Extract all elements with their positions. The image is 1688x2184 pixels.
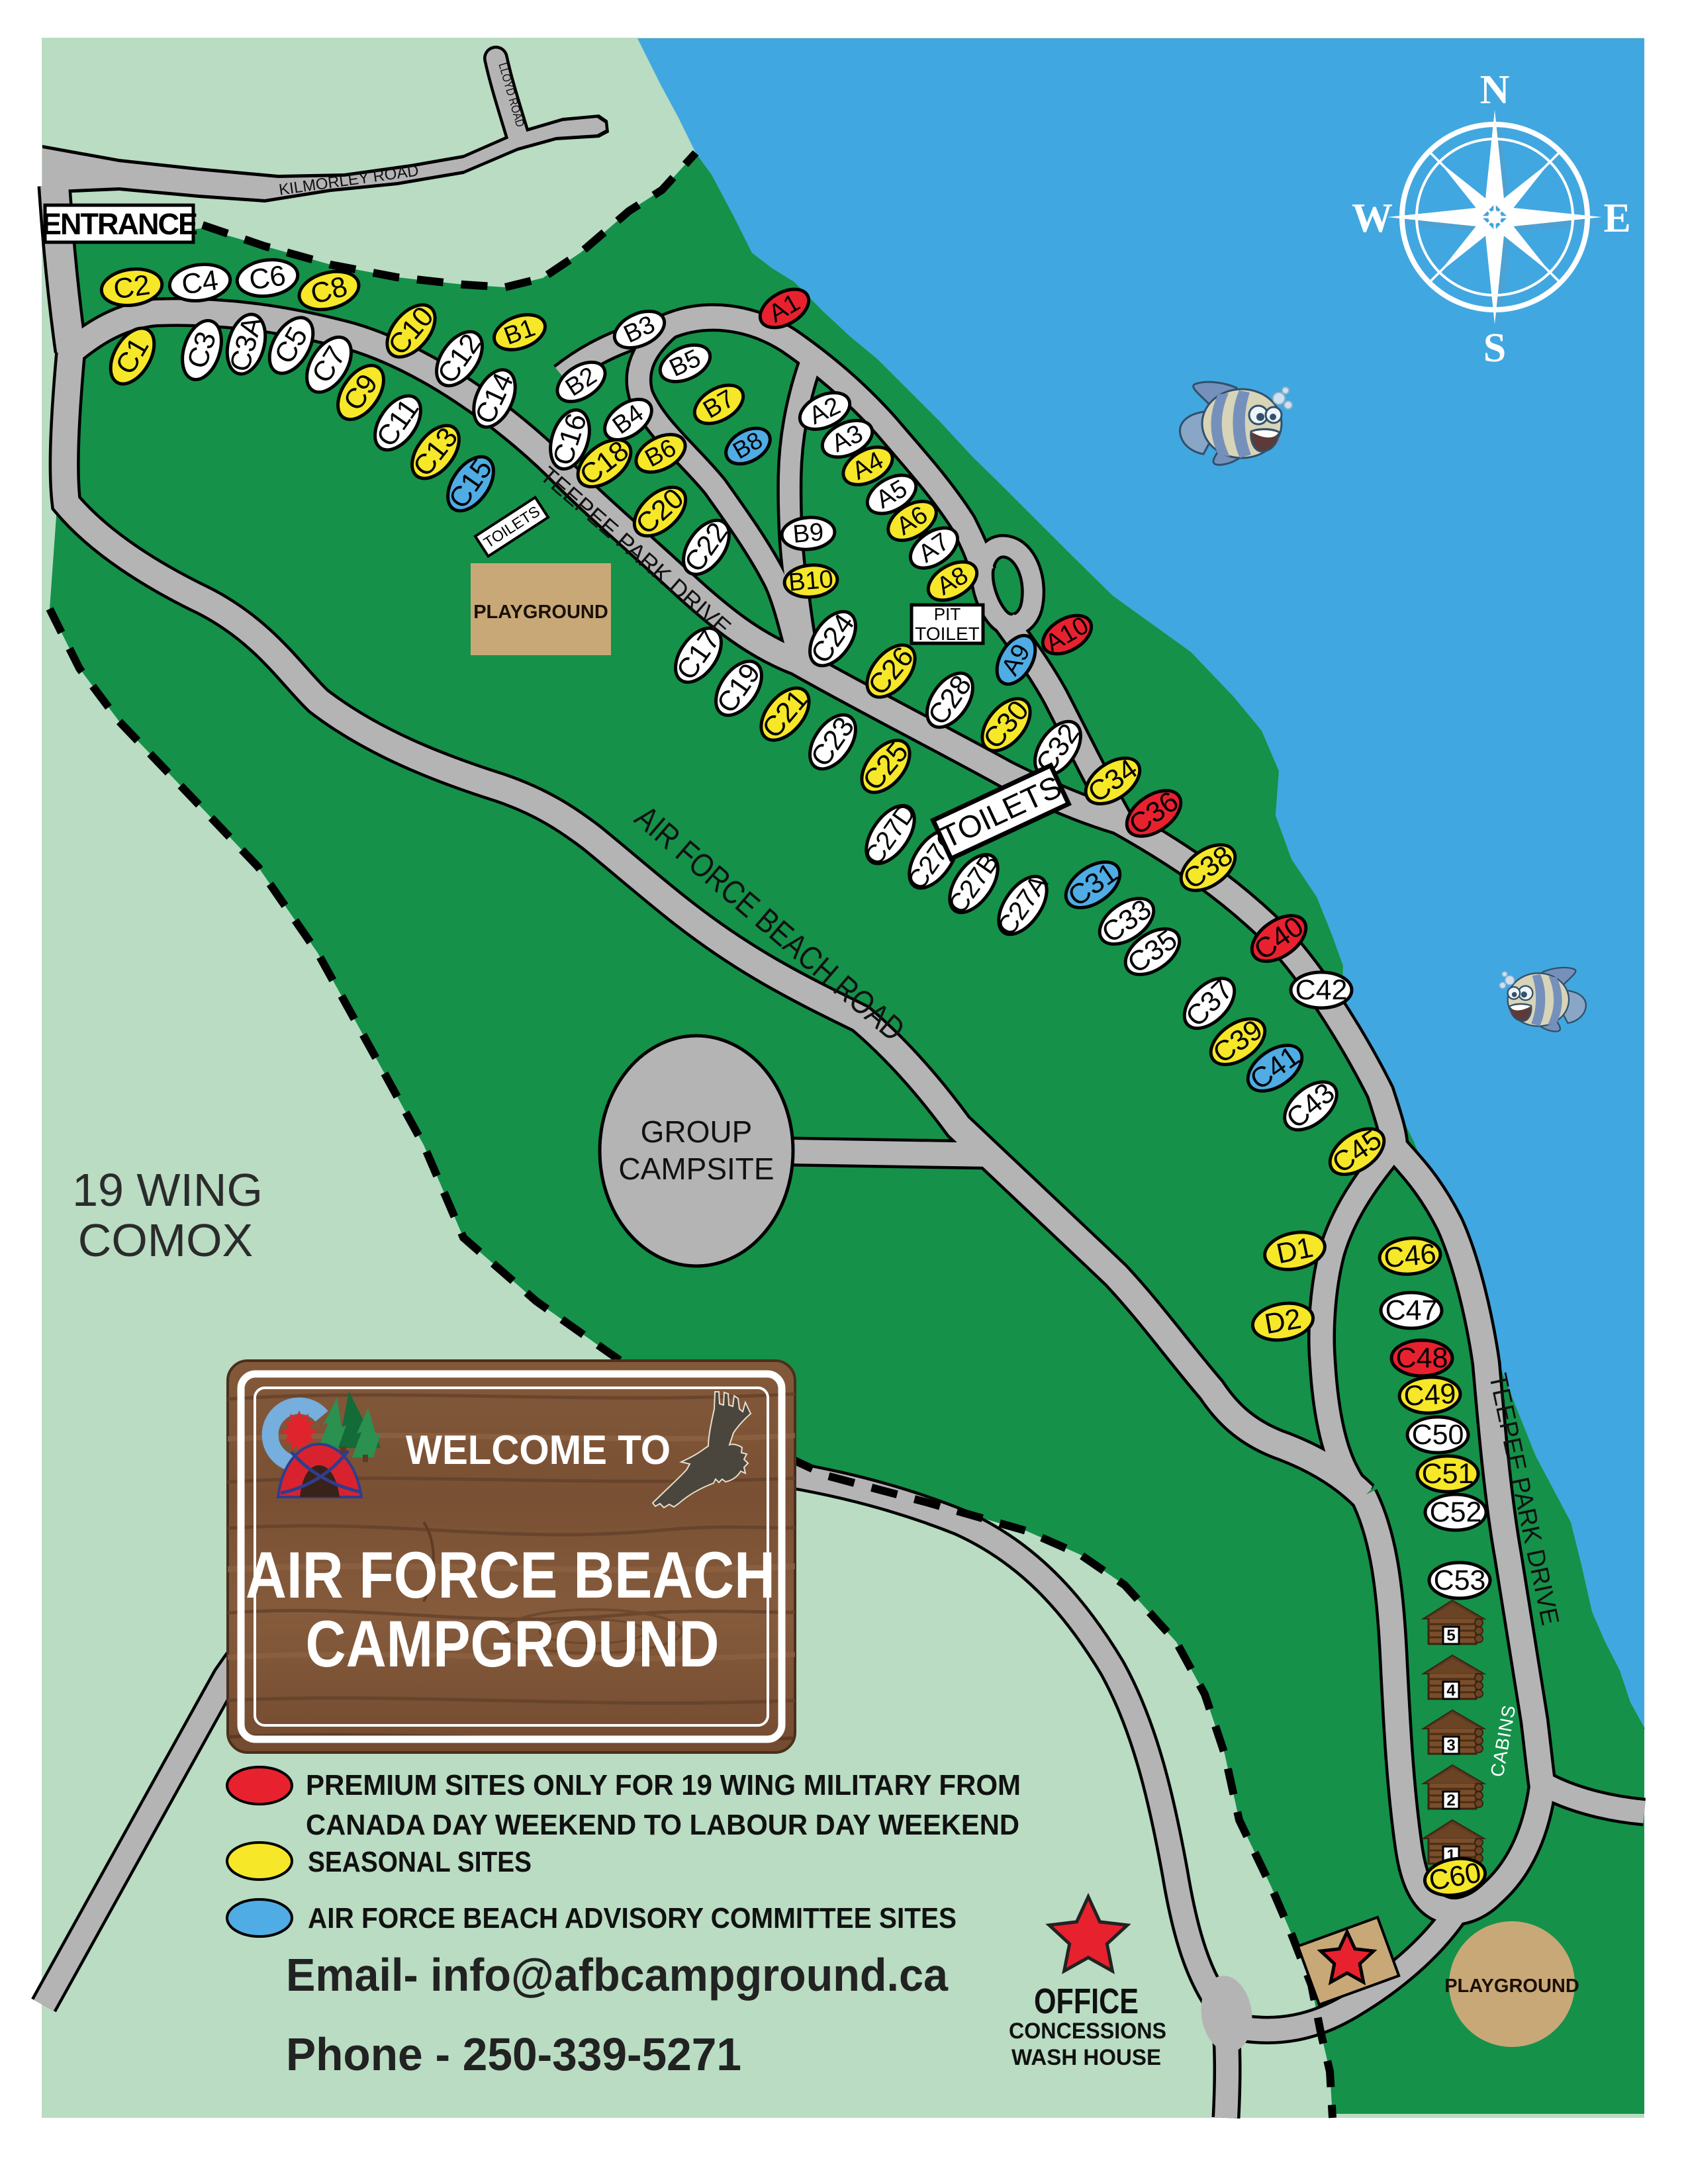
svg-text:C2: C2 [111,269,152,305]
svg-text:GROUP: GROUP [641,1115,753,1149]
svg-text:CONCESSIONS: CONCESSIONS [1009,2019,1166,2044]
svg-text:AIR FORCE BEACH: AIR FORCE BEACH [246,1538,775,1612]
svg-text:OFFICE: OFFICE [1034,1981,1139,2021]
svg-text:C49: C49 [1403,1378,1456,1412]
svg-text:COMOX: COMOX [78,1214,253,1266]
svg-text:PLAYGROUND: PLAYGROUND [1444,1976,1579,1997]
svg-text:WASH HOUSE: WASH HOUSE [1011,2045,1161,2070]
svg-text:PREMIUM SITES ONLY FOR 19 WING: PREMIUM SITES ONLY FOR 19 WING MILITARY … [306,1769,1021,1801]
svg-text:2: 2 [1446,1792,1455,1809]
svg-text:C53: C53 [1434,1565,1486,1596]
svg-text:C48: C48 [1396,1342,1448,1374]
svg-text:C46: C46 [1383,1238,1438,1275]
svg-text:B10: B10 [787,565,834,597]
svg-text:Email- info@afbcampground.ca: Email- info@afbcampground.ca [286,1949,949,2001]
svg-text:4: 4 [1446,1682,1456,1700]
svg-text:CAMPSITE: CAMPSITE [618,1152,774,1186]
svg-text:N: N [1480,68,1510,113]
svg-text:SEASONAL SITES: SEASONAL SITES [308,1846,532,1878]
svg-text:3: 3 [1446,1737,1455,1754]
svg-text:WELCOME TO: WELCOME TO [406,1428,671,1473]
svg-text:C6: C6 [247,259,287,296]
svg-text:PIT: PIT [934,604,961,624]
svg-text:ENTRANCE: ENTRANCE [42,207,197,241]
svg-text:W: W [1352,196,1393,241]
svg-text:C52: C52 [1430,1496,1482,1528]
svg-text:E: E [1603,196,1630,241]
svg-text:Phone - 250-339-5271: Phone - 250-339-5271 [286,2028,741,2080]
svg-text:S: S [1483,326,1506,371]
svg-text:D2: D2 [1262,1303,1303,1341]
svg-text:C51: C51 [1422,1458,1474,1490]
svg-text:PLAYGROUND: PLAYGROUND [473,602,608,623]
svg-text:C42: C42 [1295,974,1348,1006]
svg-text:C47: C47 [1385,1295,1438,1326]
svg-text:C50: C50 [1412,1419,1464,1451]
svg-text:B9: B9 [792,518,825,549]
svg-text:AIR FORCE BEACH ADVISORY COMMI: AIR FORCE BEACH ADVISORY COMMITTEE SITES [308,1902,957,1934]
svg-text:5: 5 [1446,1627,1455,1645]
svg-text:TOILET: TOILET [915,623,980,644]
svg-text:19 WING: 19 WING [72,1164,263,1216]
svg-text:CAMPGROUND: CAMPGROUND [306,1607,720,1680]
svg-text:C4: C4 [179,264,220,300]
svg-text:CANADA DAY WEEKEND TO LABOUR D: CANADA DAY WEEKEND TO LABOUR DAY WEEKEND [306,1809,1019,1841]
